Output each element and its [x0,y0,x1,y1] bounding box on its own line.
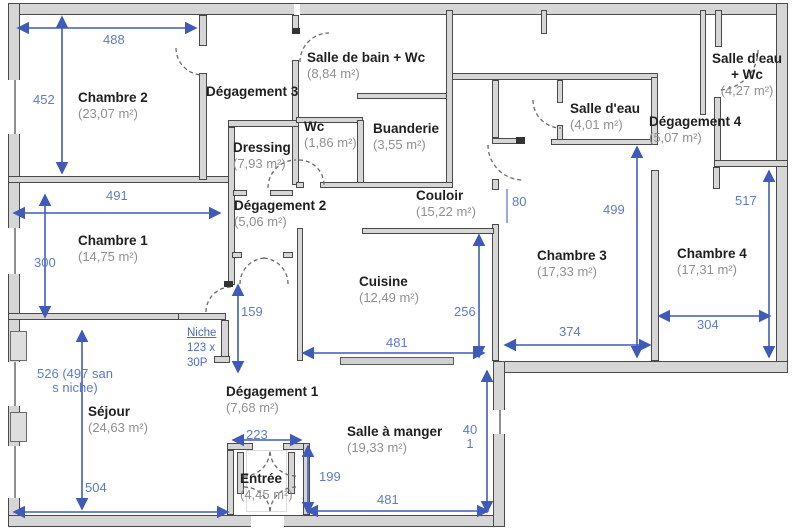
dim-label: 517 [735,194,757,208]
dim-label: 499 [603,203,625,217]
room-name: Buanderie [373,121,439,137]
room-label: Couloir(15,22 m²) [416,188,476,220]
room-area: (4,45 m²) [240,487,293,503]
door-arc [488,145,523,180]
room-name: Chambre 3 [537,248,607,264]
room-label: Chambre 3(17,33 m²) [537,248,607,280]
room-label: Dégagement 4(5,07 m²) [649,114,741,146]
room-name: Chambre 2 [78,90,148,106]
room-label: Salle de bain + Wc(8,84 m²) [307,50,425,82]
door-arc [262,258,288,284]
room-label: Cuisine(12,49 m²) [359,274,419,306]
room-area: (5,07 m²) [649,130,741,146]
dim-label: 401 [460,423,480,451]
dim-label: 223 [246,428,268,442]
dim-label: 488 [103,33,125,47]
room-label: Dégagement 3 [206,84,298,100]
door-leaf [516,137,525,144]
floor-plan: Chambre 2(23,07 m²)Chambre 1(14,75 m²)Sé… [0,0,795,531]
room-name: Salle de bain + Wc [307,50,425,66]
room-name: Cuisine [359,274,419,290]
room-label: Salle à manger(19,33 m²) [347,424,442,456]
room-name: Salle à manger [347,424,442,440]
dim-label: 304 [697,318,719,332]
room-area: (1,86 m²) [304,135,357,151]
room-area: (15,22 m²) [416,204,476,220]
room-area: (19,33 m²) [347,440,442,456]
dim-label: 504 [85,481,107,495]
room-area: (8,84 m²) [307,66,425,82]
niche-note-dim2: 30P [187,357,207,369]
room-name: Dégagement 4 [649,114,741,130]
room-area: (24,63 m²) [88,420,148,436]
room-area: (14,75 m²) [78,249,148,265]
door-arc [206,287,231,312]
room-area: (7,68 m²) [226,400,318,416]
room-label: Dégagement 2(5,06 m²) [234,198,326,230]
door-arc [533,100,561,128]
dim-label: 481 [386,336,408,350]
room-area: (3,55 m²) [373,137,439,153]
dim-label: 481 [377,493,399,507]
dim-label: 452 [33,93,55,107]
room-name: Salle d'eau [570,101,640,117]
door-arc [240,258,266,284]
room-label: Dressing(7,93 m²) [233,140,291,172]
dim-label: 159 [241,305,263,319]
dim-label: 374 [559,325,581,339]
niche-note-dim1: 123 x [187,342,215,354]
room-name: Dégagement 3 [206,84,298,100]
door-leaf [292,28,300,34]
room-area: (4,01 m²) [570,117,640,133]
dim-label: 199 [319,470,341,484]
room-area: (17,33 m²) [537,264,607,280]
room-area: (17,31 m²) [677,262,747,278]
dim-label: 300 [34,256,56,270]
room-area: (23,07 m²) [78,106,148,122]
room-label: Salle d'eau + Wc(4,27 m²) [712,51,782,99]
room-area: (12,49 m²) [359,290,419,306]
room-label: Wc(1,86 m²) [304,119,357,151]
niche-note-title: Niche [187,327,216,339]
niche-note: Niche 123 x 30P [187,326,216,371]
room-name: Wc [304,119,357,135]
door-leaf [224,281,233,287]
room-name: Séjour [88,404,148,420]
room-label: Salle d'eau(4,01 m²) [570,101,640,133]
room-label: Entrée(4,45 m²) [240,471,293,503]
room-label: Séjour(24,63 m²) [88,404,148,436]
room-name: Couloir [416,188,476,204]
dim-label: 256 [454,305,476,319]
dim-label: 80 [512,195,526,209]
room-area: (7,93 m²) [233,156,291,172]
room-label: Chambre 1(14,75 m²) [78,233,148,265]
room-label: Chambre 2(23,07 m²) [78,90,148,122]
room-name: Chambre 4 [677,246,747,262]
room-name: Entrée [240,471,293,487]
room-area: (4,27 m²) [712,83,782,99]
room-name: Dégagement 2 [234,198,326,214]
room-name: Dressing [233,140,291,156]
room-name: Salle d'eau + Wc [712,51,782,83]
door-arc [299,160,324,185]
room-name: Chambre 1 [78,233,148,249]
room-label: Buanderie(3,55 m²) [373,121,439,153]
room-label: Chambre 4(17,31 m²) [677,246,747,278]
door-arc [176,48,203,75]
room-area: (5,06 m²) [234,214,326,230]
dim-label: 491 [106,189,128,203]
dim-label: 526 (497 sans niche) [37,367,113,395]
room-label: Dégagement 1(7,68 m²) [226,384,318,416]
room-name: Dégagement 1 [226,384,318,400]
